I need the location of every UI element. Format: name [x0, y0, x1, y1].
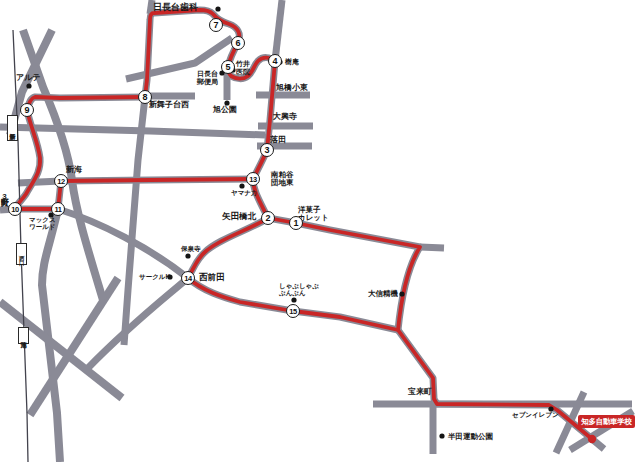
- label-shinkai: 新海: [66, 166, 82, 175]
- road-network: [0, 0, 640, 462]
- label-onocho-3: 大野町3: [0, 192, 8, 201]
- label-arute: アルテ: [16, 74, 41, 83]
- stop-marker-1: 1: [289, 216, 303, 230]
- stop-marker-13: 13: [246, 172, 260, 186]
- station-name: 西ノ口: [19, 251, 25, 257]
- stop-marker-7: 7: [209, 18, 223, 32]
- label-asahibashi-kohigashi: 旭橋小東: [276, 84, 308, 93]
- label-takei-clinic: 竹井 医院: [236, 60, 250, 76]
- stop-number: 5: [225, 62, 230, 72]
- label-line: しゃぶしゃぶ: [279, 282, 319, 289]
- label-line: マックス: [29, 216, 56, 223]
- route-13-to-4: [253, 61, 275, 179]
- label-shabu-shabu-bunbun: しゃぶしゃぶ ぶんぶん: [279, 282, 319, 297]
- stop-number: 6: [235, 38, 240, 48]
- school-name-badge: 知多自動車学校: [578, 415, 635, 428]
- stop-number: 8: [142, 92, 147, 102]
- label-line: 竹井: [236, 60, 250, 68]
- stop-marker-5: 5: [221, 60, 235, 74]
- poi-dot-dental: [215, 6, 220, 11]
- stop-number: 15: [289, 307, 296, 316]
- school-name: 知多自動車学校: [581, 417, 631, 427]
- stop-marker-2: 2: [261, 211, 275, 225]
- station-nishinokuchi: 西ノ口: [16, 243, 27, 265]
- stop-marker-14: 14: [181, 271, 195, 285]
- label-max-world: マックス ワールド: [29, 216, 56, 231]
- stop-number: 10: [11, 205, 18, 214]
- stop-number: 1: [293, 218, 298, 228]
- stop-marker-9: 9: [20, 103, 34, 117]
- label-daishin-seiki: 大信精機: [368, 290, 398, 298]
- road-school-approach: [398, 330, 592, 439]
- stop-number: 9: [24, 105, 29, 115]
- stop-marker-6: 6: [231, 36, 245, 50]
- route-school-approach: [398, 330, 592, 439]
- road-north-of-4: [275, 0, 282, 61]
- poi-dot-bunbun: [291, 297, 296, 302]
- label-line: 日長台: [197, 70, 218, 78]
- label-line: ぶんぶん: [279, 289, 319, 296]
- stop-number: 13: [249, 175, 256, 184]
- label-line: 団地東: [271, 179, 294, 187]
- stop-number: 14: [184, 274, 191, 283]
- stop-marker-4: 4: [268, 54, 282, 68]
- stop-number: 7: [213, 20, 218, 30]
- poi-dot-handa-park: [439, 433, 444, 438]
- poi-dot-hosenji: [185, 253, 190, 258]
- stop-number: 11: [55, 205, 62, 214]
- stop-number: 4: [272, 56, 277, 66]
- stop-marker-12: 12: [54, 174, 68, 188]
- stop-marker-11: 11: [51, 202, 65, 216]
- label-horaicho: 宝来町: [408, 388, 432, 397]
- map-canvas: 1 2 3 4 5 6 7 8 9 10 11 12 13 14 15 新舞子 …: [0, 0, 640, 462]
- stop-number: 2: [265, 213, 270, 223]
- road-east-stub-bend: [420, 247, 444, 248]
- label-line: 医院: [236, 68, 250, 76]
- label-line: 郵便局: [197, 78, 218, 86]
- stop-number: 3: [264, 145, 269, 155]
- label-nishi-maeda: 西前田: [199, 273, 225, 283]
- stop-marker-8: 8: [138, 90, 152, 104]
- label-ochida: 落田: [270, 136, 286, 145]
- label-line: ワールド: [29, 223, 56, 230]
- label-hinagadai-post-office: 日長台 郵便局: [197, 70, 218, 86]
- stop-number: 12: [57, 177, 64, 186]
- poi-dot-daishin: [399, 291, 404, 296]
- label-yadabashi-kita: 矢田橋北: [222, 212, 256, 222]
- label-handa-sports-park: 半田運動公園: [448, 433, 493, 441]
- label-minami-kasuya-danchi-higashi: 南粕谷 団地東: [271, 171, 294, 188]
- poi-dot-arute: [26, 83, 31, 88]
- poi-dot-yamanaka: [239, 183, 244, 188]
- label-juan: 樹庵: [285, 58, 299, 66]
- label-circle-k: サークルK: [139, 273, 170, 280]
- station-shinmaiko: 新舞子: [7, 115, 18, 141]
- label-seven-eleven: セブンイレブン: [512, 411, 559, 418]
- stop-marker-3: 3: [260, 143, 274, 157]
- stop-marker-10: 10: [8, 202, 22, 216]
- label-daikoji: 大興寺: [273, 113, 297, 122]
- label-asahi-park: 旭公園: [213, 106, 237, 115]
- station-kabaike: 蒲池: [18, 327, 29, 344]
- school-location-dot: [588, 435, 596, 443]
- stop-marker-15: 15: [286, 304, 300, 318]
- label-hosenji: 保泉寺: [181, 245, 201, 252]
- label-shinmaiko-dai-nishi: 新舞子台西: [149, 101, 189, 110]
- road-main-horizontal: [0, 127, 265, 135]
- label-hinagadai-dental: 日長台歯科: [153, 2, 198, 12]
- label-yamanaka: ヤマナカ: [231, 189, 258, 196]
